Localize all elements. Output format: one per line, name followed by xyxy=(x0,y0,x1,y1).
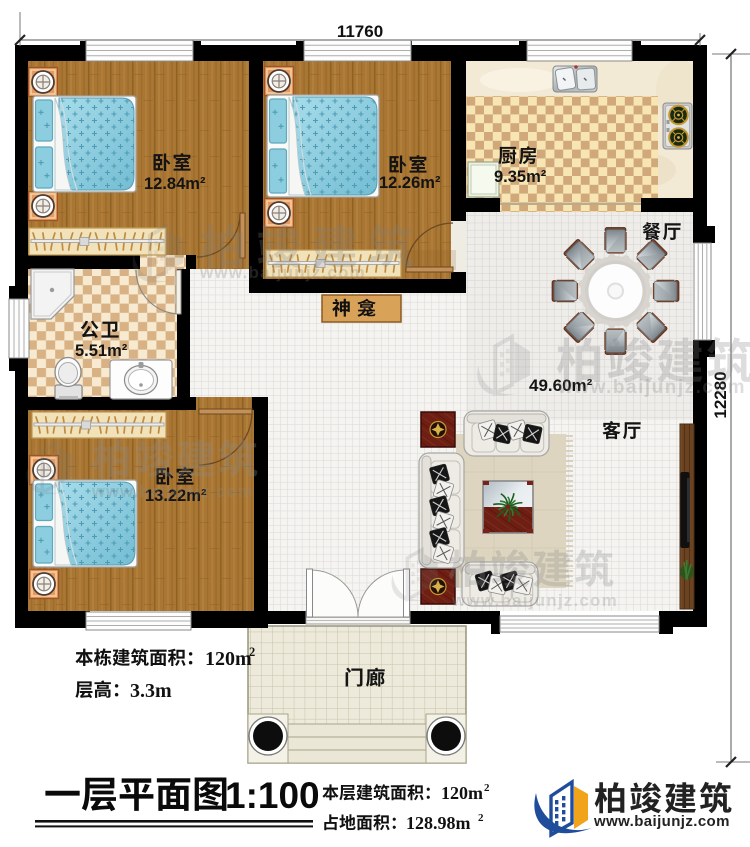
svg-text:www.baijunjz.com: www.baijunjz.com xyxy=(451,591,618,610)
svg-text:www.baijunjz.com: www.baijunjz.com xyxy=(557,377,746,398)
svg-text:11760: 11760 xyxy=(337,22,383,41)
svg-text:5.51m²: 5.51m² xyxy=(75,342,128,360)
svg-text:www.baijunjz.com: www.baijunjz.com xyxy=(199,263,366,282)
svg-text:128.98m: 128.98m xyxy=(406,813,471,833)
svg-text:12.84m²: 12.84m² xyxy=(144,175,206,193)
svg-text:2: 2 xyxy=(249,645,255,659)
svg-text:9.35m²: 9.35m² xyxy=(494,168,547,186)
svg-text:1:100: 1:100 xyxy=(225,775,320,816)
svg-text:www.baijunjz.com: www.baijunjz.com xyxy=(593,813,730,830)
svg-text:3.3m: 3.3m xyxy=(130,680,172,702)
svg-text:2: 2 xyxy=(478,812,484,824)
svg-text:2: 2 xyxy=(484,782,490,794)
svg-text:12.26m²: 12.26m² xyxy=(379,174,441,192)
svg-text:www.baijunjz.com: www.baijunjz.com xyxy=(91,483,254,501)
svg-text:120m: 120m xyxy=(441,783,483,803)
svg-text:120m: 120m xyxy=(205,648,252,670)
